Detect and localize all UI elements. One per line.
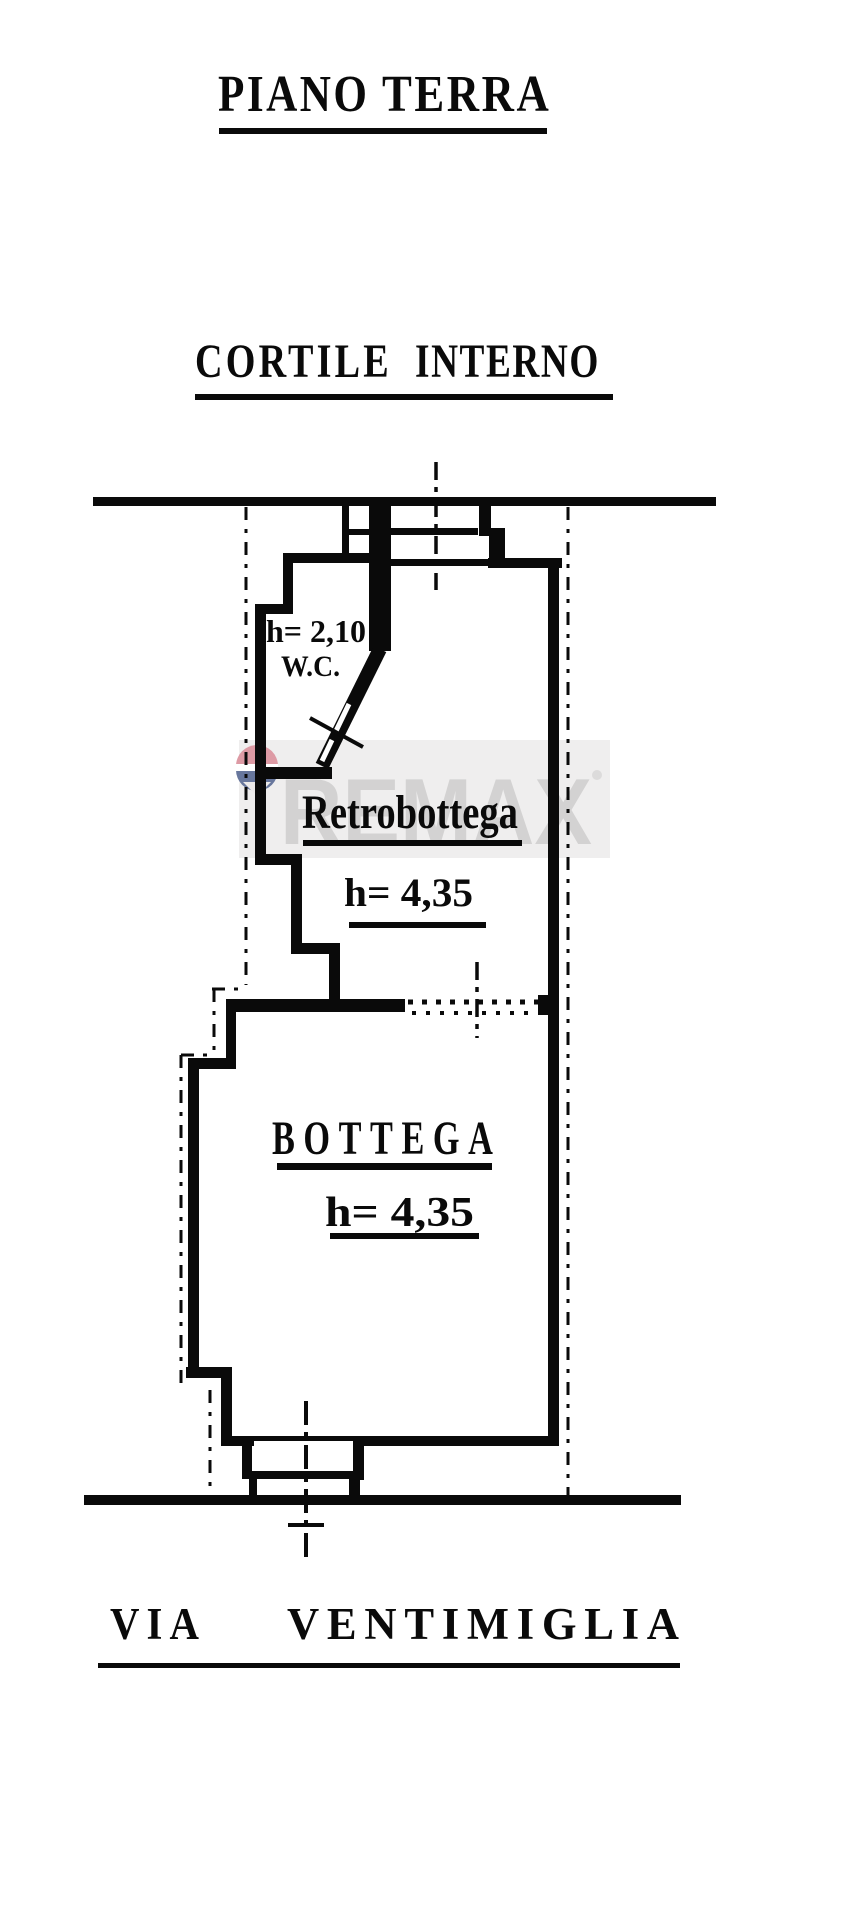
svg-text:VENTIMIGLIA: VENTIMIGLIA: [287, 1598, 687, 1649]
svg-text:h= 2,10: h= 2,10: [266, 613, 366, 649]
svg-text:h= 4,35: h= 4,35: [325, 1190, 474, 1236]
svg-text:BOTTEGA: BOTTEGA: [272, 1113, 501, 1166]
svg-text:INTERNO: INTERNO: [415, 336, 600, 388]
svg-text:W.C.: W.C.: [281, 650, 340, 683]
svg-text:PIANO: PIANO: [218, 65, 369, 123]
svg-text:Retrobottega: Retrobottega: [302, 786, 518, 839]
svg-text:VIA: VIA: [110, 1599, 206, 1650]
svg-text:CORTILE: CORTILE: [195, 335, 392, 388]
svg-text:TERRA: TERRA: [382, 66, 551, 123]
svg-text:h= 4,35: h= 4,35: [344, 870, 473, 915]
